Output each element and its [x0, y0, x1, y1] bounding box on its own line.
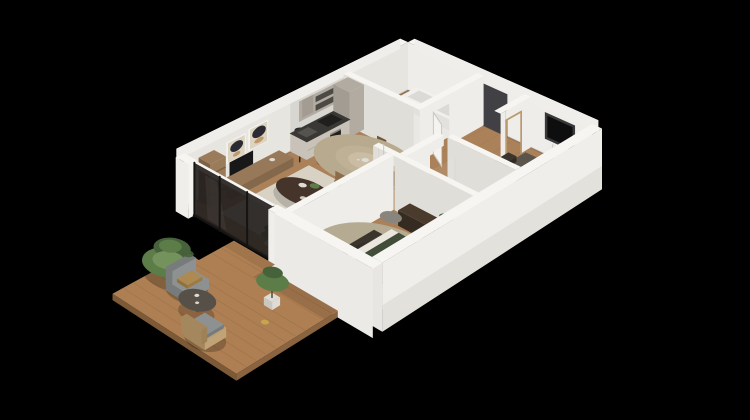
kitchen-tall-cabinet-front	[350, 85, 365, 137]
isometric-apartment-scene	[0, 0, 750, 420]
bedroom2-wall	[521, 97, 531, 153]
se-wall-end	[372, 257, 382, 332]
floorplan-render	[0, 0, 750, 420]
door-frame	[520, 111, 522, 154]
sw-pillar	[176, 157, 189, 219]
